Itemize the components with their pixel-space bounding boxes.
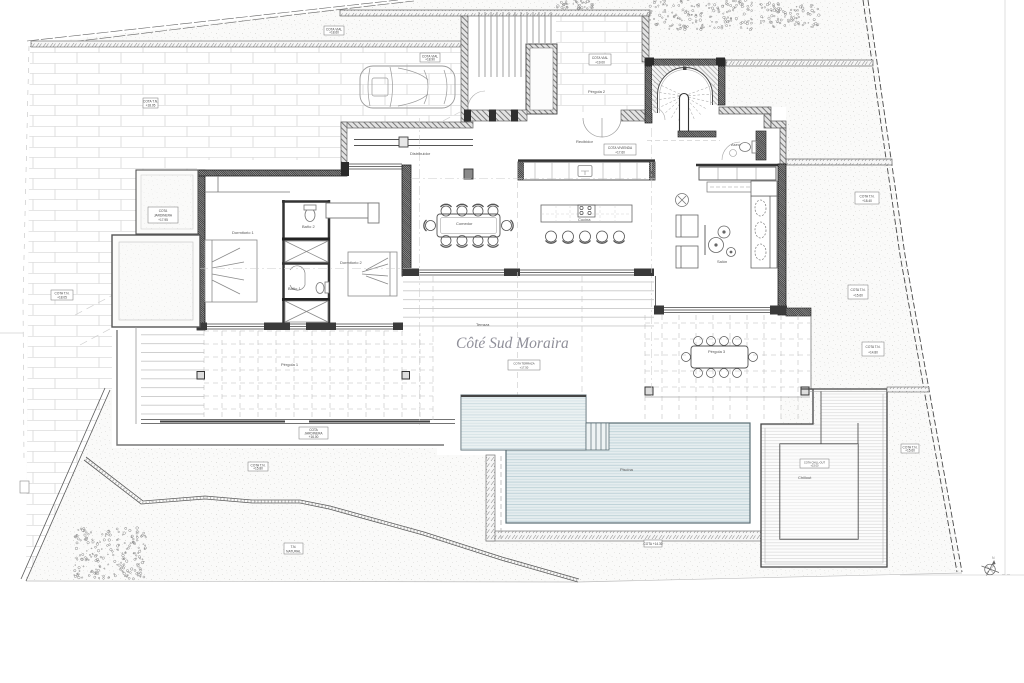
svg-text:Distribuidor: Distribuidor [410,151,431,156]
svg-text:COTA T.N.: COTA T.N. [860,194,875,198]
svg-text:+15.60: +15.60 [905,449,915,453]
svg-text:COTA: COTA [159,209,168,213]
svg-text:+18.40: +18.40 [862,199,872,203]
svg-text:Dormitorio 2: Dormitorio 2 [340,260,363,265]
svg-text:Aseo: Aseo [731,142,741,147]
svg-text:+17.95: +17.95 [158,218,168,222]
svg-text:+15.80: +15.80 [253,467,263,471]
svg-text:+18.05: +18.05 [146,104,156,108]
svg-text:+18.60: +18.60 [329,31,339,35]
svg-text:JARDINERA: JARDINERA [154,214,173,218]
svg-text:+19.00: +19.00 [595,60,605,64]
svg-text:COTA T.N.: COTA T.N. [851,288,866,292]
svg-text:+16.00: +16.00 [309,435,319,439]
svg-text:Piscina: Piscina [620,467,634,472]
svg-text:+14.80: +14.80 [868,351,878,355]
svg-text:Chillout: Chillout [798,475,812,480]
svg-text:+15.60: +15.60 [853,294,863,298]
svg-text:Terraza: Terraza [476,322,490,327]
svg-text:Baño 2: Baño 2 [302,224,315,229]
svg-text:+15.00: +15.00 [810,464,819,468]
svg-text:Pérgola 3: Pérgola 3 [708,349,726,354]
svg-text:Comedor: Comedor [456,221,473,226]
svg-text:+18.05: +18.05 [57,296,67,300]
svg-text:Dormitorio 1: Dormitorio 1 [232,230,255,235]
svg-text:Pérgola 1: Pérgola 1 [281,362,299,367]
svg-text:+17.50: +17.50 [520,366,529,370]
svg-text:Pérgola 2: Pérgola 2 [588,89,606,94]
svg-text:Cocina: Cocina [578,217,591,222]
svg-text:COTA +14.30: COTA +14.30 [643,542,662,546]
svg-text:Baño 1: Baño 1 [288,286,301,291]
svg-text:NATURAL: NATURAL [286,549,301,553]
svg-text:+18.90: +18.90 [425,58,435,62]
svg-text:Côté Sud Moraira: Côté Sud Moraira [456,335,569,352]
svg-text:COTA T.N.: COTA T.N. [866,345,881,349]
svg-text:COTA CHILL-OUT: COTA CHILL-OUT [804,460,826,464]
svg-text:Salón: Salón [717,259,727,264]
svg-text:+17.60: +17.60 [615,150,625,154]
svg-text:Recibidor: Recibidor [576,139,594,144]
